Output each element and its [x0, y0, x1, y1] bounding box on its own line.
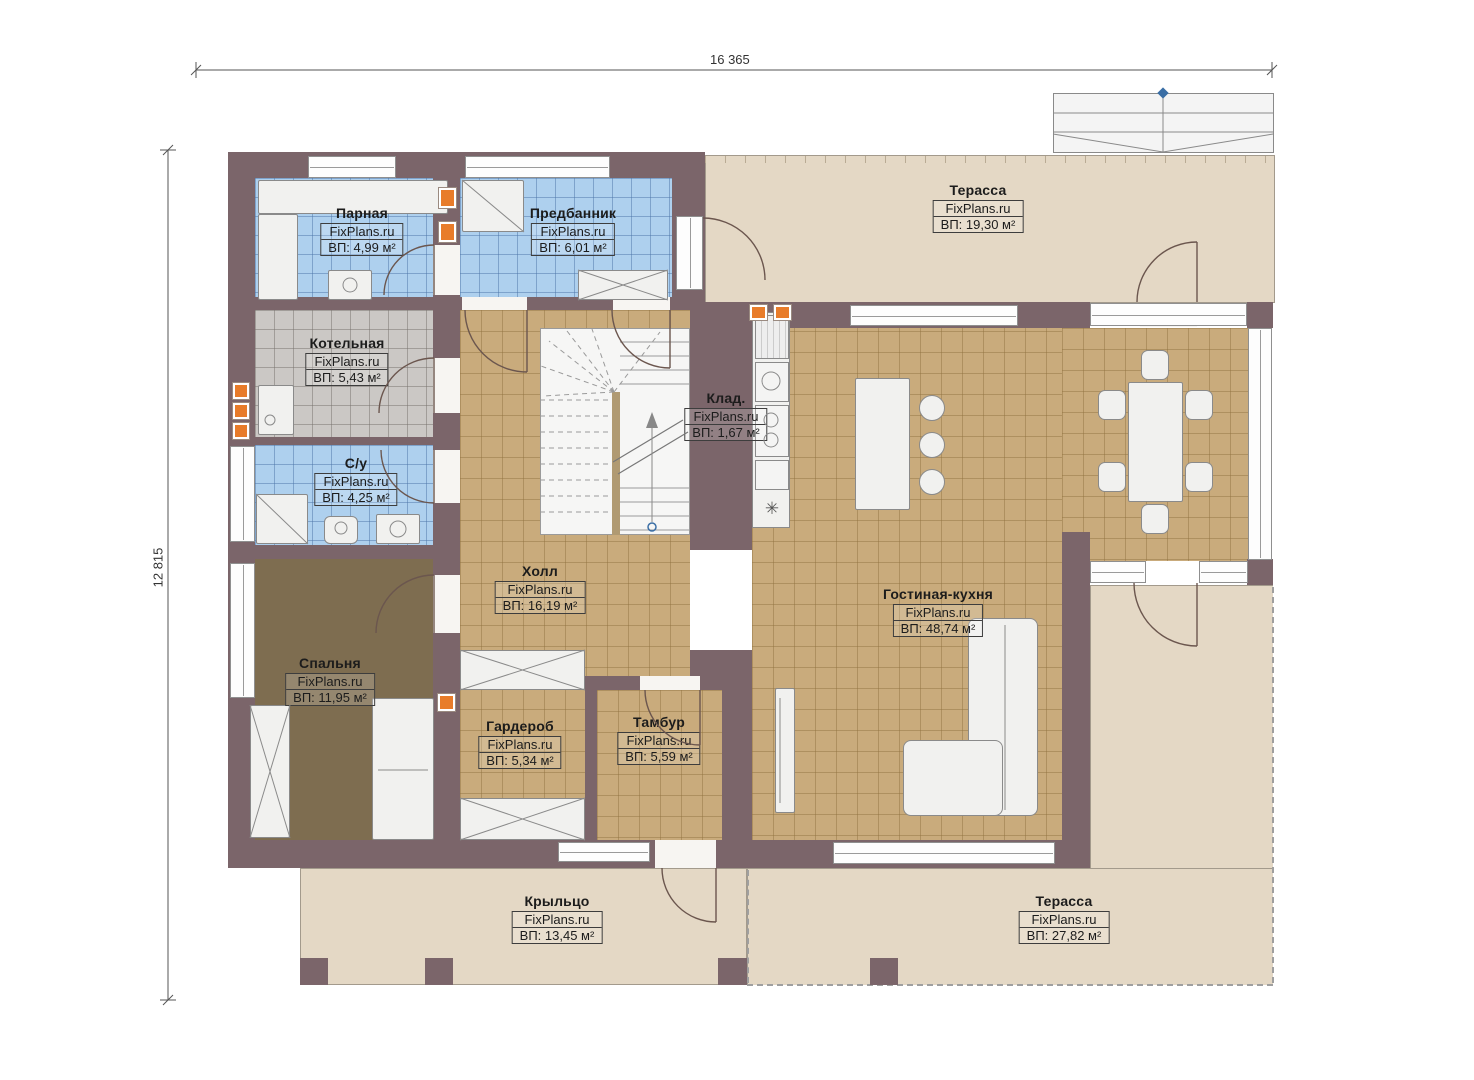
floor-plan: 16 365 12 815	[0, 0, 1474, 1080]
toilet	[324, 516, 358, 544]
brand-watermark: FixPlans.ru	[496, 582, 585, 598]
terrace-right-dashed-edge	[1272, 587, 1274, 983]
brand-watermark: FixPlans.ru	[618, 733, 699, 749]
room-label-terrace-top: Терасса FixPlans.ruВП: 19,30 м²	[933, 182, 1024, 234]
brand-watermark: FixPlans.ru	[934, 201, 1023, 217]
porch-column	[300, 958, 328, 985]
dining-chair	[1141, 504, 1169, 534]
washbasin	[376, 514, 420, 544]
vent	[233, 383, 249, 399]
terrace-bottom-floor	[747, 868, 1273, 985]
vent	[439, 188, 456, 208]
room-label-su: С/у FixPlans.ruВП: 4,25 м²	[314, 455, 397, 507]
room-label-klad: Клад. FixPlans.ruВП: 1,67 м²	[684, 390, 767, 442]
brand-watermark: FixPlans.ru	[321, 224, 402, 240]
bay-post-top-right	[1247, 302, 1273, 328]
boiler-mark: ✳	[758, 496, 786, 522]
vent	[233, 423, 249, 439]
sauna-bench-left	[258, 214, 298, 300]
brand-watermark: FixPlans.ru	[532, 224, 613, 240]
dining-chair	[1185, 390, 1213, 420]
window-parnaya-top	[308, 156, 396, 178]
room-label-parnaya: Парная FixPlans.ruВП: 4,99 м²	[320, 205, 403, 257]
staircase-divider	[612, 392, 620, 535]
sauna-stove	[328, 270, 372, 300]
dining-chair	[1098, 462, 1126, 492]
dimension-top-label: 16 365	[710, 52, 750, 67]
wall-bottom-bedroom	[228, 840, 460, 868]
bay-post-bottom-right	[1247, 559, 1273, 585]
vent	[233, 403, 249, 419]
room-label-tambur: Тамбур FixPlans.ruВП: 5,59 м²	[617, 714, 700, 766]
brand-watermark: FixPlans.ru	[513, 912, 602, 928]
window-bay-top	[1090, 303, 1247, 326]
wall-h-su-bedroom	[228, 545, 460, 559]
bar-stool	[919, 469, 945, 495]
bar-stool	[919, 395, 945, 421]
boiler-unit	[258, 385, 294, 435]
porch-column	[425, 958, 453, 985]
brand-watermark: FixPlans.ru	[286, 674, 374, 690]
room-label-terrace-bottom: Терасса FixPlans.ruВП: 27,82 м²	[1019, 893, 1110, 945]
window-su-left	[230, 446, 255, 542]
room-label-hall: Холл FixPlans.ruВП: 16,19 м²	[495, 563, 586, 615]
porch-terrace-divider-dashed	[747, 870, 749, 983]
brand-watermark: FixPlans.ru	[685, 409, 766, 425]
terrace-right-floor	[1090, 585, 1273, 870]
dining-chair	[1098, 390, 1126, 420]
window-predbannik-top	[465, 156, 610, 178]
brand-watermark: FixPlans.ru	[1020, 912, 1109, 928]
vent	[750, 305, 767, 320]
shower-tray-su	[256, 494, 308, 544]
fridge	[755, 315, 789, 359]
window-bay-bottom-right	[1199, 561, 1248, 583]
tv-unit	[775, 688, 795, 813]
window-living-bottom	[833, 842, 1055, 864]
dining-table	[1128, 382, 1183, 502]
vent	[439, 222, 456, 242]
window-bay-bottom-left	[1090, 561, 1146, 583]
porch-column	[870, 958, 898, 985]
wall-living-right	[1062, 580, 1090, 868]
window-tambur-bottom	[558, 842, 650, 862]
wall-h-kotelnaya-su	[255, 437, 433, 445]
dining-chair	[1141, 350, 1169, 380]
door-opening-porch	[655, 840, 716, 868]
wall-gardrob-tambur	[585, 690, 597, 840]
window-bedroom-left	[230, 563, 255, 698]
door-opening-tambur	[640, 676, 700, 690]
room-label-gardrob: Гардероб FixPlans.ruВП: 5,34 м²	[478, 718, 561, 770]
brand-watermark: FixPlans.ru	[315, 474, 396, 490]
kitchen-island	[855, 378, 910, 510]
brand-watermark: FixPlans.ru	[306, 354, 387, 370]
room-label-porch: Крыльцо FixPlans.ruВП: 13,45 м²	[512, 893, 603, 945]
door-opening-bedroom	[433, 575, 460, 633]
porch-column	[718, 958, 747, 985]
shower-tray-predbannik	[462, 180, 524, 232]
wardrobe-bedroom	[250, 705, 290, 838]
closet-gardrob-top	[460, 650, 585, 690]
door-opening-su	[433, 450, 460, 503]
window-predbannik-terrace	[676, 216, 703, 290]
exterior-steps	[1053, 93, 1274, 153]
brand-watermark: FixPlans.ru	[479, 737, 560, 753]
kitchen-cabinet	[755, 460, 789, 490]
terrace-top-deck-edge	[705, 156, 1275, 163]
vent	[438, 694, 455, 711]
bench-predbannik	[578, 270, 668, 300]
dining-chair	[1185, 462, 1213, 492]
door-opening-kotelnaya	[433, 358, 460, 413]
brand-watermark: FixPlans.ru	[894, 605, 983, 621]
door-opening-parnaya	[433, 245, 460, 295]
wall-tambur-right	[722, 650, 752, 868]
dimension-left-label: 12 815	[150, 548, 165, 588]
room-label-kotelnaya: Котельная FixPlans.ruВП: 5,43 м²	[305, 335, 388, 387]
door-opening-predbannik-hall	[462, 297, 527, 310]
bar-stool	[919, 432, 945, 458]
room-label-predbannik: Предбанник FixPlans.ruВП: 6,01 м²	[530, 205, 616, 257]
vent	[774, 305, 791, 320]
terrace-bottom-dashed-edge	[747, 984, 1273, 986]
closet-gardrob-bottom	[460, 798, 585, 840]
room-label-bedroom: Спальня FixPlans.ruВП: 11,95 м²	[285, 655, 375, 707]
bay-post-top-left	[1062, 302, 1090, 328]
sofa-chaise-section	[903, 740, 1003, 816]
bed	[372, 698, 434, 840]
window-bay-right	[1248, 328, 1272, 560]
window-living-top	[850, 305, 1018, 326]
room-label-living: Гостиная-кухня FixPlans.ruВП: 48,74 м²	[883, 586, 993, 638]
bay-post-bottom-left	[1062, 532, 1090, 585]
